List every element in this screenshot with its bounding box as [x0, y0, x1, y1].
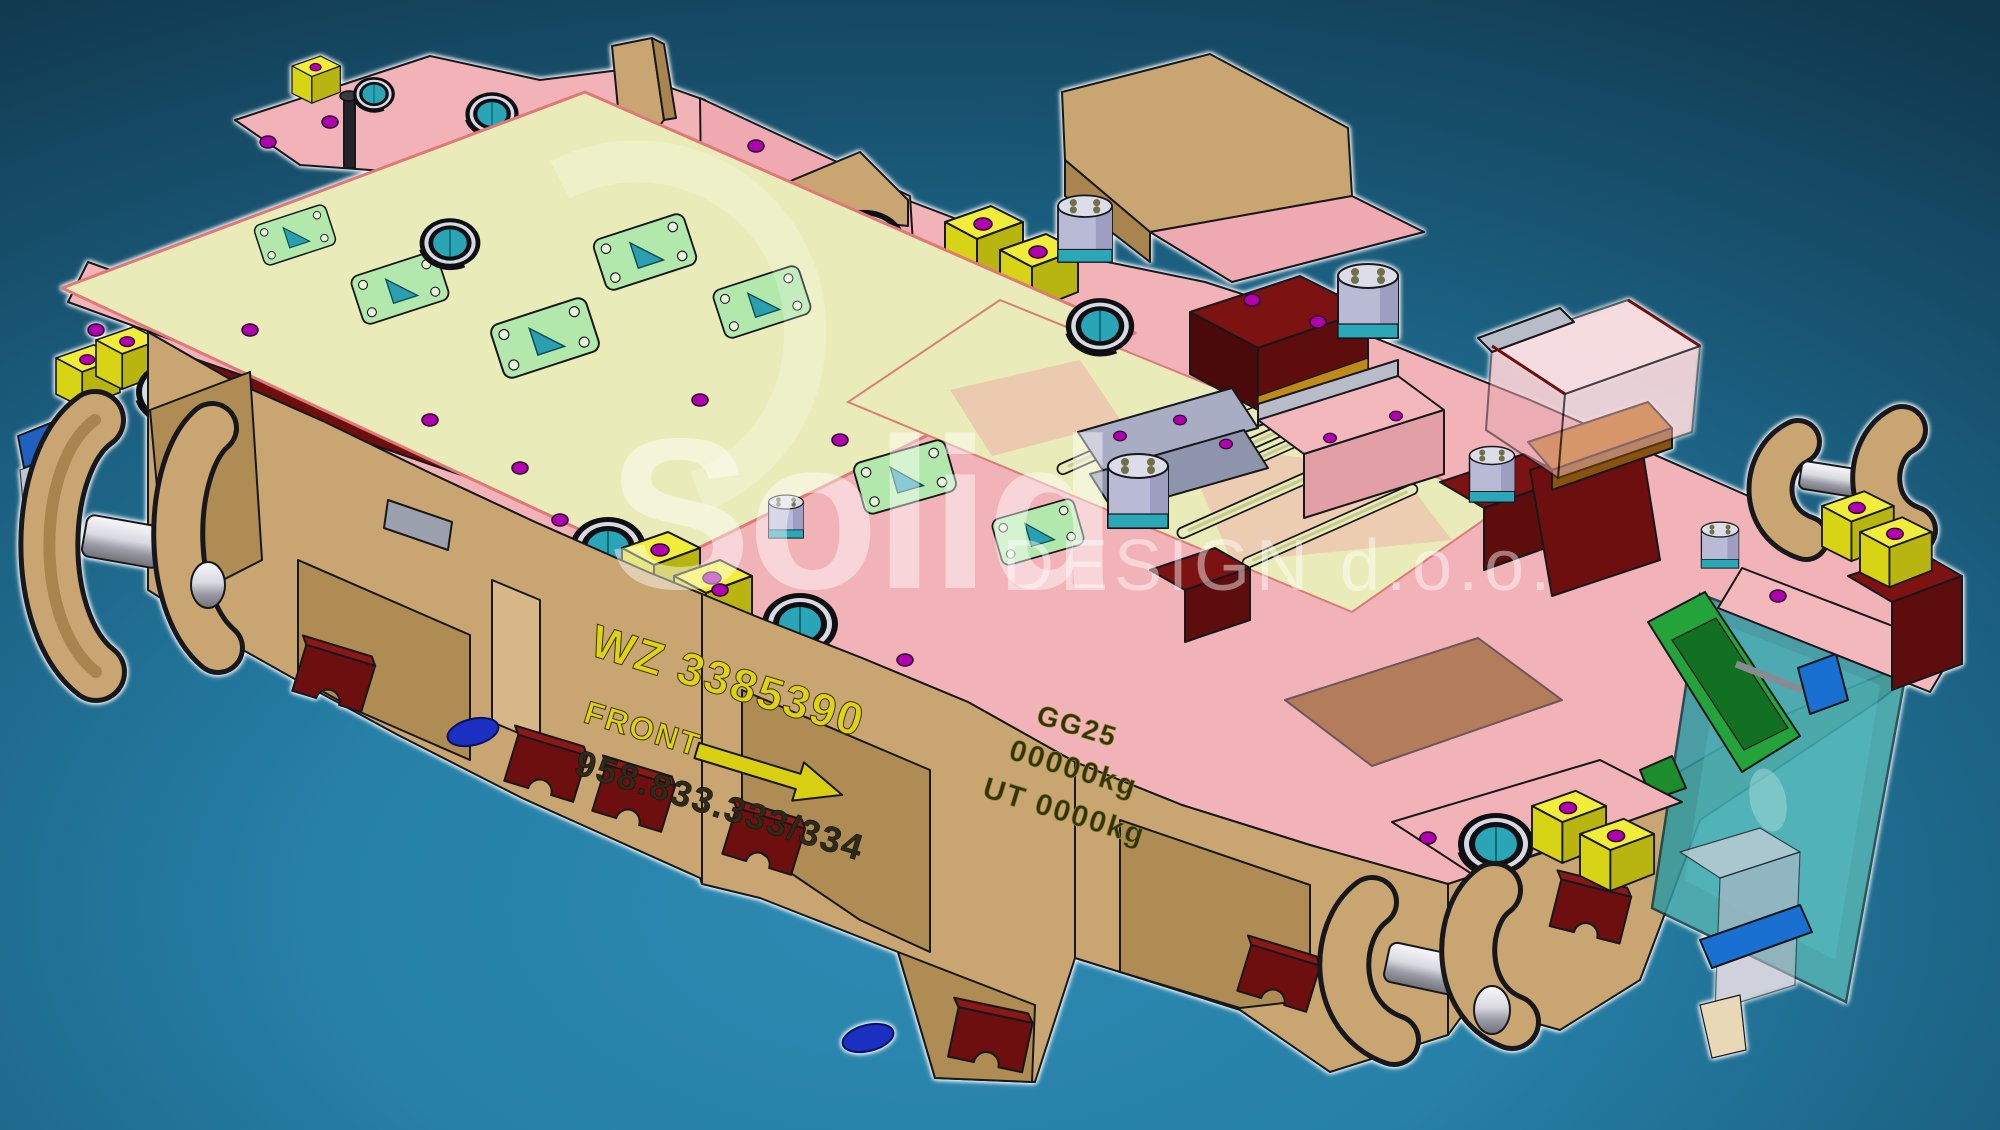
pin-end: [191, 562, 225, 608]
guide-bushing: [353, 77, 395, 111]
cad-render: WZ 3385390 FRONT 958.833.333/334 GG25 00…: [0, 0, 2000, 1130]
watermark-company: DESIGN d.o.o.: [1002, 526, 1556, 606]
nitrogen-cylinder: [1058, 195, 1112, 262]
lifter-cylinder: [1701, 522, 1738, 568]
pin-end: [1474, 986, 1510, 1034]
cad-viewport: WZ 3385390 FRONT 958.833.333/334 GG25 00…: [0, 0, 2000, 1130]
nitrogen-cylinder: [1338, 264, 1398, 338]
guide-bushing: [1066, 298, 1134, 354]
nitrogen-cylinder: [1470, 447, 1515, 503]
nitrogen-cylinder: [1108, 454, 1168, 528]
guide-bushing: [420, 218, 481, 268]
